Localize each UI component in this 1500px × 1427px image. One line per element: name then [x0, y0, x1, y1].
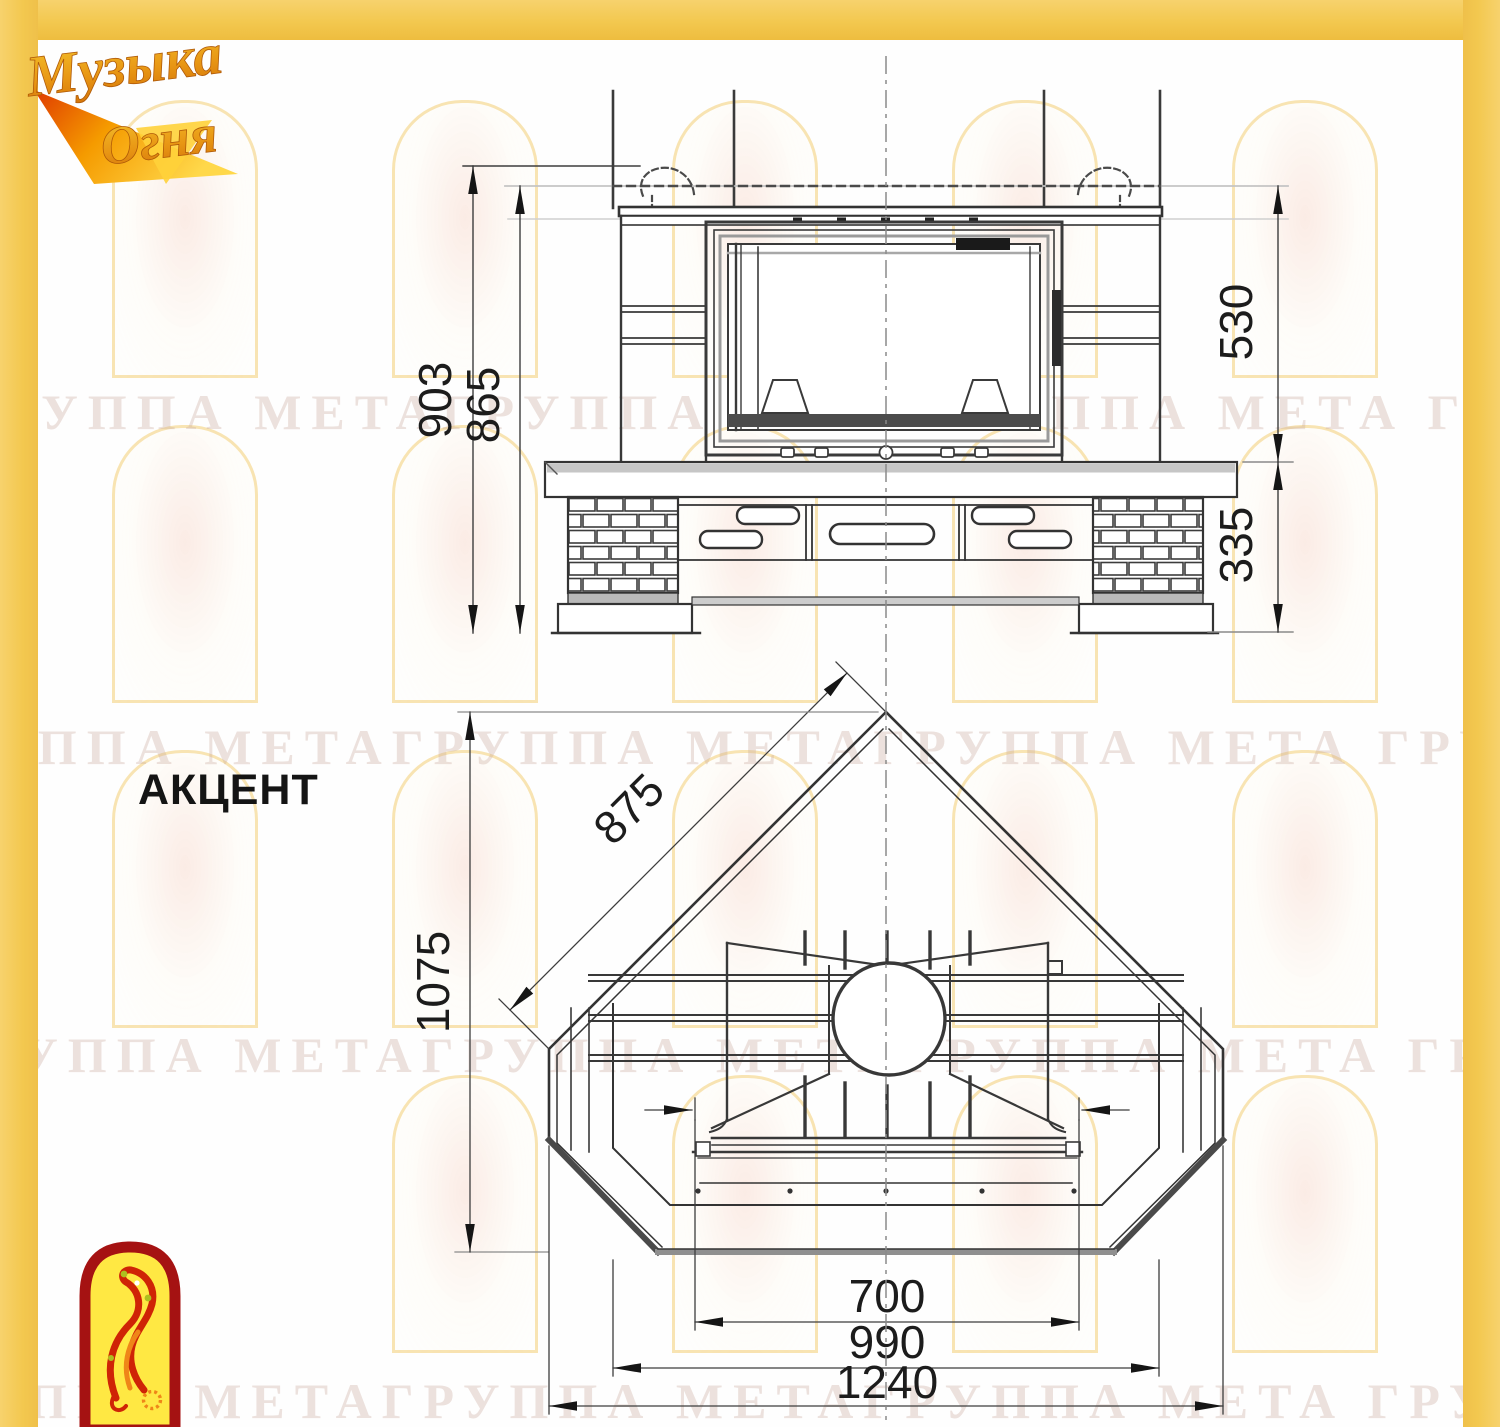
- brand-logo: Музыка Огня: [8, 6, 268, 191]
- firebox-door: [706, 222, 1062, 459]
- page: ГРУППА МЕТАГРУППА МЕТАГРУППА МЕТА ГРУППА…: [0, 0, 1500, 1427]
- brick-pillar-left: [568, 497, 678, 593]
- door-handle: [1052, 290, 1061, 366]
- base: [552, 497, 1218, 633]
- plinth-right: [1079, 604, 1213, 633]
- plinth-left: [558, 604, 692, 633]
- dim-height-total: 903: [409, 362, 461, 439]
- sill-vents: [781, 446, 988, 459]
- dim-line-875: [510, 673, 847, 1010]
- oval-slot: [830, 524, 934, 544]
- dim-upper-section: 530: [1210, 284, 1262, 361]
- dim-firebox-width: 700: [849, 1270, 926, 1322]
- grate-bars: [805, 1077, 970, 1136]
- technical-drawing: 903 865 530 335: [0, 0, 1500, 1427]
- front-view: 903 865 530 335: [409, 91, 1293, 633]
- model-title: АКЦЕНТ: [138, 766, 319, 815]
- fold-line: [505, 168, 1288, 211]
- dim-depth: 1075: [407, 931, 459, 1033]
- hearth-slab: [545, 462, 1237, 497]
- s-slot-left: [700, 507, 799, 548]
- brand-line1: Музыка: [22, 21, 226, 110]
- brand-plate: [956, 238, 1010, 250]
- s-slot-right: [972, 507, 1071, 548]
- flue-outlet: [833, 963, 945, 1075]
- dim-back-wall: 875: [583, 763, 674, 854]
- frame-band-right: [1463, 0, 1500, 1427]
- firebird-logo: [78, 1238, 182, 1427]
- frame-band-left: [0, 0, 38, 1427]
- brick-pillar-right: [1093, 497, 1203, 593]
- dim-height-to-fold: 865: [457, 367, 509, 444]
- dim-base-section: 335: [1210, 507, 1262, 584]
- dim-total-width: 1240: [836, 1356, 938, 1408]
- plan-view: 875 1075 700 990 1240: [407, 662, 1223, 1414]
